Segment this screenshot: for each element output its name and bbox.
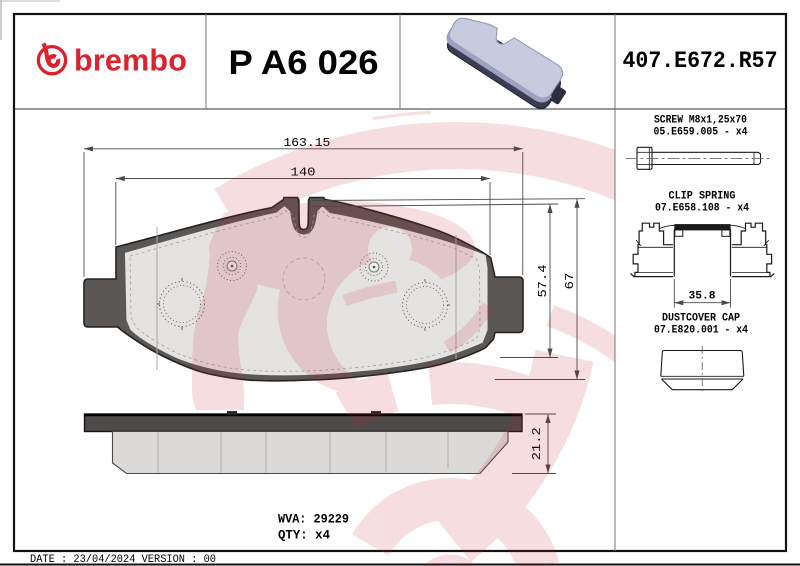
svg-text:SCREW M8x1,25x70: SCREW M8x1,25x70 — [654, 115, 747, 127]
svg-text:brembo: brembo — [74, 44, 187, 78]
svg-text:DUSTCOVER CAP: DUSTCOVER CAP — [662, 313, 740, 325]
svg-text:07.E820.001 - x4: 07.E820.001 - x4 — [654, 325, 748, 337]
svg-text:P A6 026: P A6 026 — [229, 44, 379, 82]
svg-text:CLIP SPRING: CLIP SPRING — [669, 191, 736, 203]
svg-text:WVA: 29229: WVA: 29229 — [278, 512, 349, 527]
svg-text:07.E658.108 - x4: 07.E658.108 - x4 — [655, 202, 749, 214]
svg-text:QTY: x4: QTY: x4 — [278, 528, 330, 543]
svg-text:407.E672.R57: 407.E672.R57 — [623, 48, 778, 75]
svg-text:67: 67 — [563, 273, 577, 290]
svg-text:05.E659.005 - x4: 05.E659.005 - x4 — [654, 127, 748, 139]
svg-text:35.8: 35.8 — [689, 290, 716, 302]
